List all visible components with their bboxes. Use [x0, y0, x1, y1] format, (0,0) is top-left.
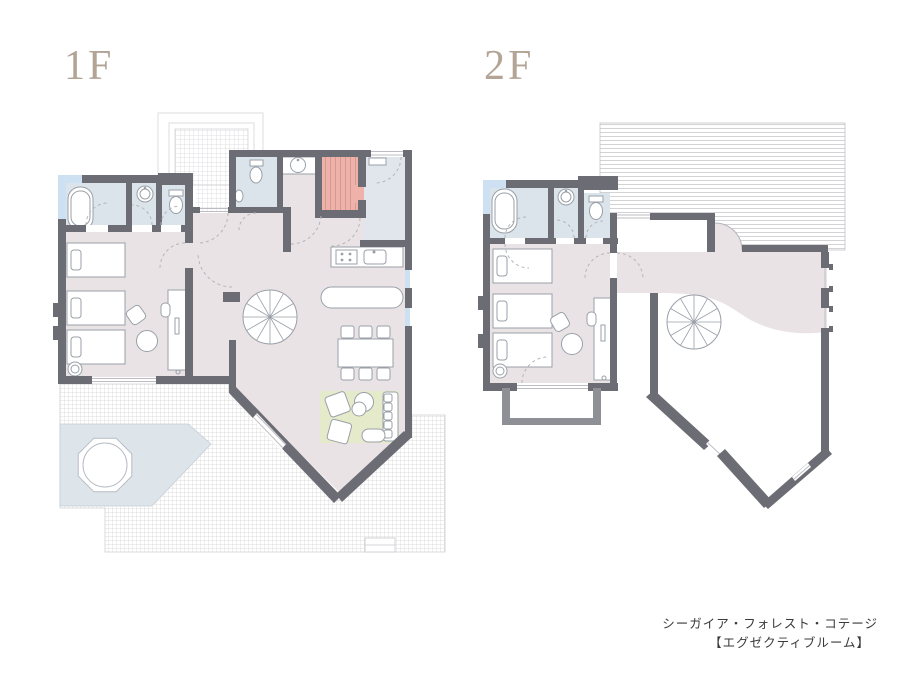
washbasin-icon: [558, 189, 574, 205]
floor-lamp-icon: [493, 364, 507, 378]
washbasin-icon: [137, 186, 153, 202]
deck-step: [365, 538, 395, 552]
bed: [67, 330, 125, 364]
staircase-up: [322, 157, 364, 210]
ottoman-icon: [362, 429, 385, 442]
window-glass: [58, 175, 66, 219]
spiral-staircase-icon: [667, 295, 721, 349]
caption-line-2: 【エグゼクティブルーム】: [662, 634, 878, 653]
bed: [67, 291, 125, 325]
floor-plan-1f: [53, 113, 445, 552]
vanity-counter: [281, 157, 316, 174]
window-glass: [405, 270, 410, 288]
spiral-staircase-icon: [243, 290, 297, 344]
window-glass: [405, 308, 410, 326]
bathtub-icon: [492, 189, 517, 233]
plan-caption: シーガイア・フォレスト・コテージ 【エグゼクティブルーム】: [662, 615, 878, 654]
floor-lamp-icon: [68, 362, 82, 376]
island-counter: [321, 287, 403, 308]
bathtub-icon: [68, 187, 93, 230]
shoe-cabinet: [369, 158, 386, 165]
window-glass: [483, 180, 490, 214]
floor-plans-canvas: [0, 0, 900, 675]
side-table-icon: [562, 334, 583, 355]
toilet-icon: [169, 190, 183, 214]
balcony-floor: [510, 391, 592, 418]
floor-plan-2f: [478, 123, 845, 509]
hallway-floor: [617, 220, 715, 252]
bed: [493, 294, 552, 328]
kitchen-counter: [331, 247, 403, 267]
toilet-icon: [589, 196, 603, 220]
landing-floor: [617, 250, 827, 333]
dining-table-icon: [338, 339, 393, 367]
entrance-hall-floor: [364, 157, 405, 241]
bed: [493, 333, 552, 367]
hot-tub-icon: [78, 438, 132, 492]
side-table-icon: [137, 331, 158, 352]
dining-set: [338, 326, 393, 380]
bed: [67, 243, 125, 277]
bed: [493, 249, 552, 283]
caption-line-1: シーガイア・フォレスト・コテージ: [662, 615, 878, 634]
